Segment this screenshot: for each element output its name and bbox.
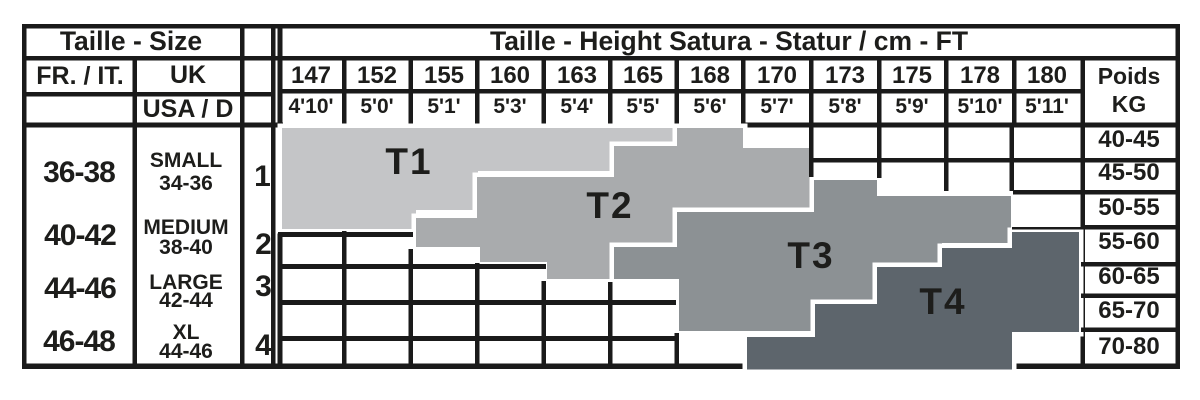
svg-text:4: 4 bbox=[255, 329, 272, 362]
svg-text:T4: T4 bbox=[919, 281, 966, 322]
svg-text:SMALL: SMALL bbox=[150, 149, 222, 172]
svg-text:Taille - Height Satura - Statu: Taille - Height Satura - Statur / cm - F… bbox=[490, 26, 968, 56]
svg-text:5'5': 5'5' bbox=[626, 95, 659, 118]
svg-text:165: 165 bbox=[623, 62, 663, 89]
svg-text:152: 152 bbox=[357, 62, 397, 89]
svg-text:42-44: 42-44 bbox=[159, 289, 213, 312]
svg-text:5'7': 5'7' bbox=[760, 95, 793, 118]
svg-text:180: 180 bbox=[1027, 62, 1067, 89]
svg-text:175: 175 bbox=[892, 62, 932, 89]
svg-text:170: 170 bbox=[757, 62, 797, 89]
svg-text:4'10': 4'10' bbox=[288, 95, 333, 118]
svg-text:34-36: 34-36 bbox=[159, 172, 213, 195]
svg-text:UK: UK bbox=[170, 61, 206, 89]
svg-text:65-70: 65-70 bbox=[1098, 297, 1159, 324]
svg-text:160: 160 bbox=[490, 62, 530, 89]
svg-text:Taille - Size: Taille - Size bbox=[60, 26, 202, 56]
svg-text:5'8': 5'8' bbox=[828, 95, 861, 118]
svg-text:FR. / IT.: FR. / IT. bbox=[36, 62, 124, 90]
svg-text:163: 163 bbox=[557, 62, 597, 89]
svg-text:5'6': 5'6' bbox=[693, 95, 726, 118]
svg-text:USA / D: USA / D bbox=[143, 95, 234, 123]
svg-text:5'10': 5'10' bbox=[957, 95, 1002, 118]
svg-text:168: 168 bbox=[690, 62, 730, 89]
svg-text:40-45: 40-45 bbox=[1098, 126, 1159, 153]
svg-text:KG: KG bbox=[1112, 91, 1147, 117]
svg-text:60-65: 60-65 bbox=[1098, 263, 1159, 290]
svg-text:1: 1 bbox=[254, 160, 270, 193]
svg-text:T1: T1 bbox=[385, 141, 432, 182]
svg-text:2: 2 bbox=[255, 228, 271, 261]
svg-text:178: 178 bbox=[960, 62, 1000, 89]
svg-text:36-38: 36-38 bbox=[43, 156, 115, 189]
svg-text:44-46: 44-46 bbox=[159, 340, 213, 363]
svg-text:5'11': 5'11' bbox=[1025, 95, 1069, 118]
svg-text:5'1': 5'1' bbox=[427, 95, 460, 118]
svg-text:46-48: 46-48 bbox=[43, 325, 115, 358]
svg-text:50-55: 50-55 bbox=[1098, 194, 1159, 221]
svg-text:38-40: 38-40 bbox=[159, 236, 213, 259]
svg-text:T2: T2 bbox=[586, 185, 633, 226]
svg-text:3: 3 bbox=[255, 270, 271, 303]
svg-text:5'3': 5'3' bbox=[493, 95, 526, 118]
svg-text:Poids: Poids bbox=[1098, 63, 1161, 89]
svg-text:70-80: 70-80 bbox=[1098, 333, 1159, 360]
svg-text:5'4': 5'4' bbox=[560, 95, 593, 118]
svg-text:40-42: 40-42 bbox=[44, 219, 116, 252]
svg-text:44-46: 44-46 bbox=[44, 272, 116, 305]
svg-text:55-60: 55-60 bbox=[1098, 228, 1159, 255]
svg-text:155: 155 bbox=[424, 62, 464, 89]
svg-text:T3: T3 bbox=[787, 235, 834, 276]
svg-text:5'0': 5'0' bbox=[360, 95, 393, 118]
svg-text:173: 173 bbox=[825, 62, 865, 89]
svg-text:5'9': 5'9' bbox=[895, 95, 928, 118]
svg-text:147: 147 bbox=[291, 62, 331, 89]
svg-text:45-50: 45-50 bbox=[1098, 159, 1159, 186]
